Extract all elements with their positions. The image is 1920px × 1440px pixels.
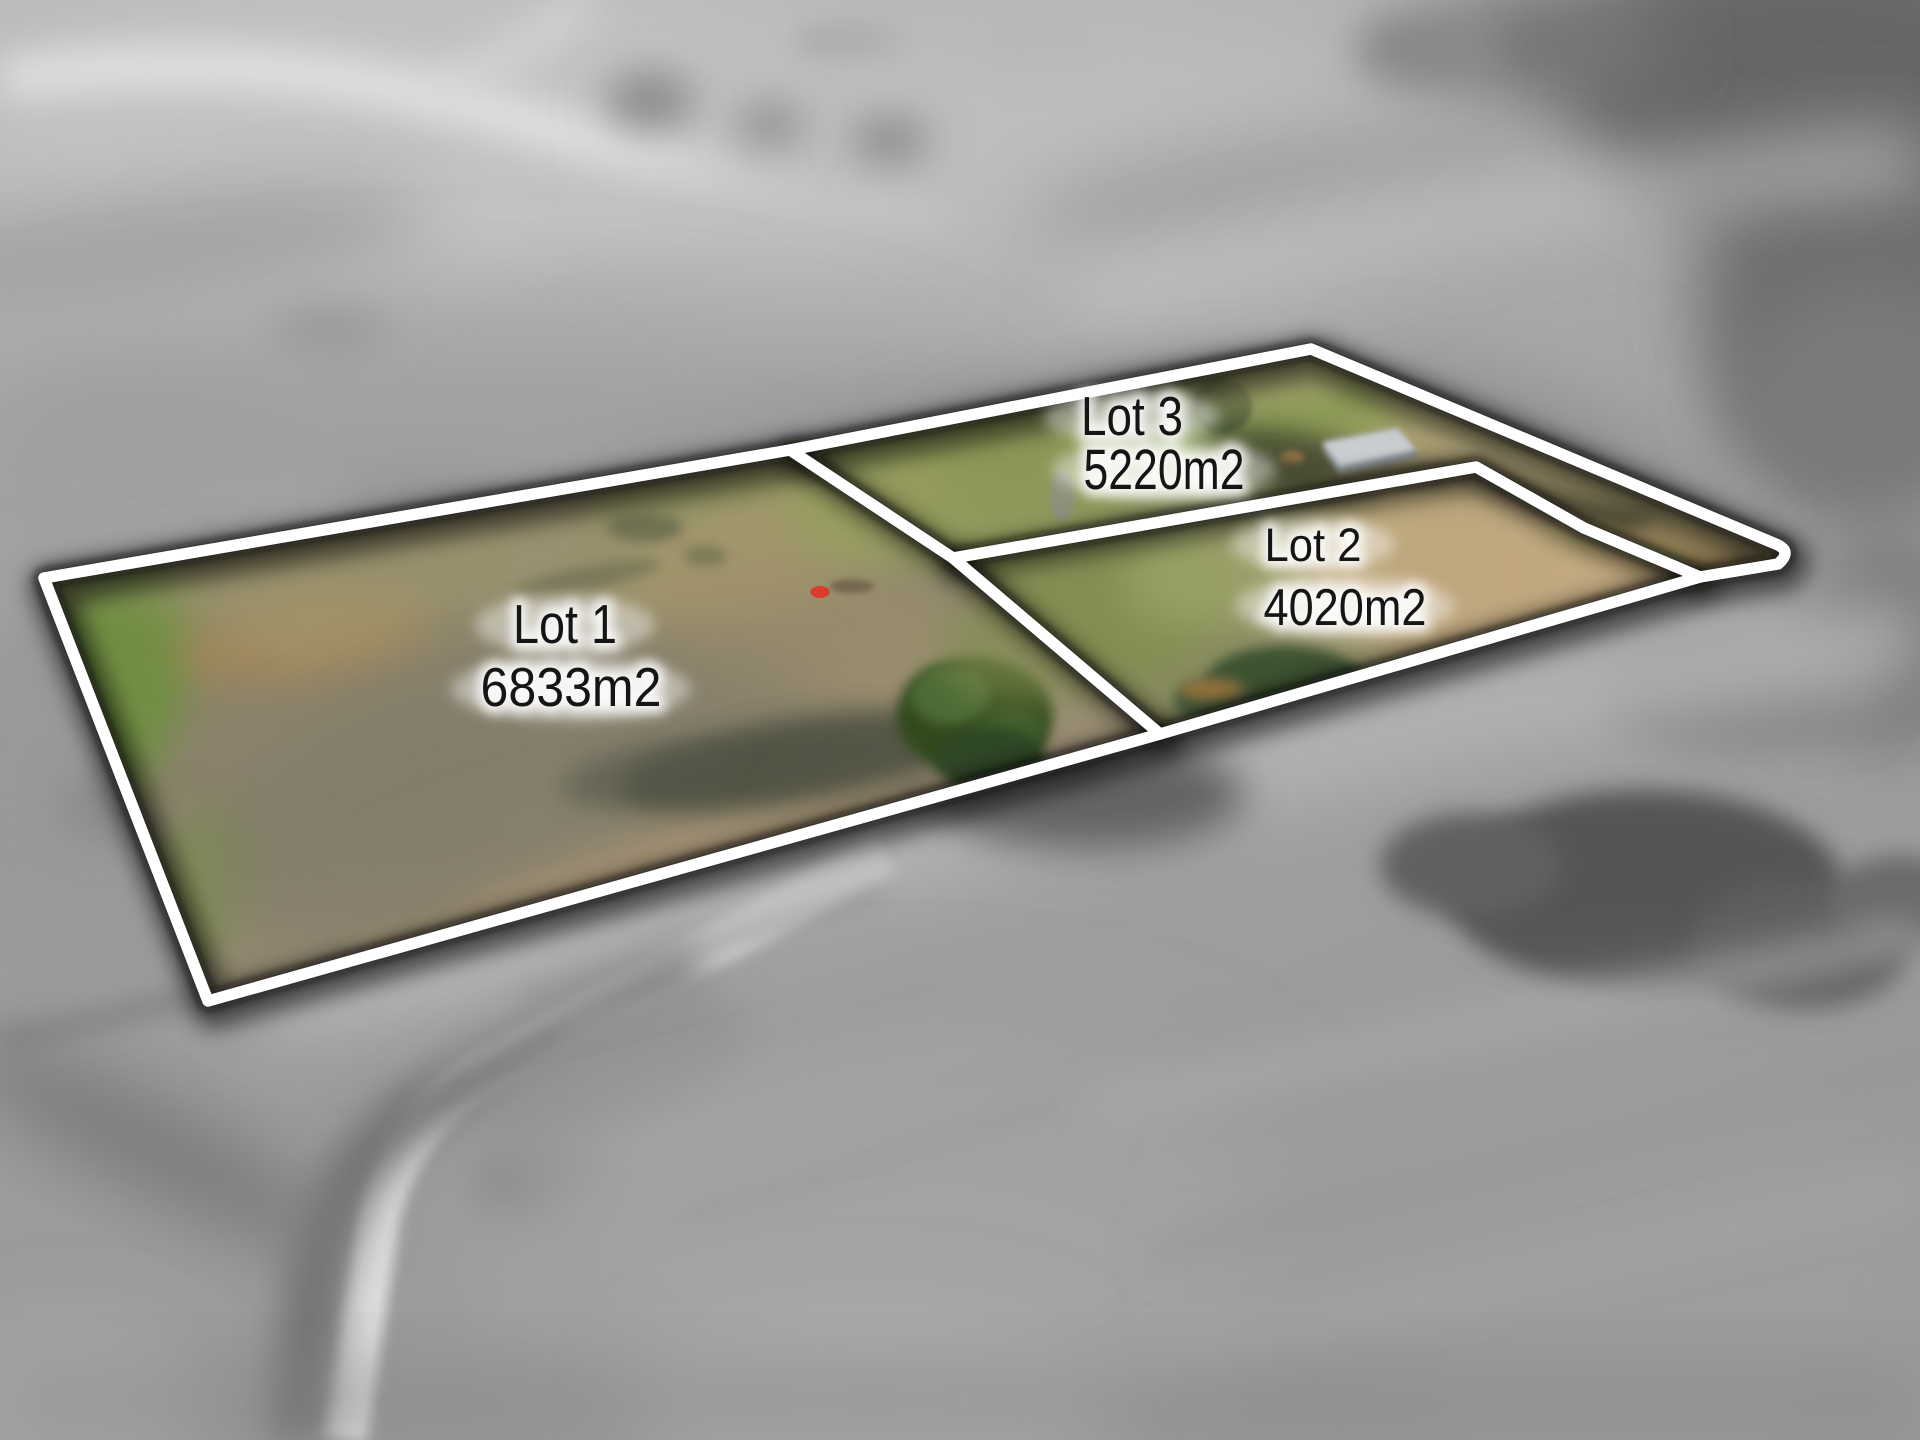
svg-text:Lot 1: Lot 1 xyxy=(513,593,617,655)
svg-text:6833m2: 6833m2 xyxy=(481,656,662,718)
svg-text:4020m2: 4020m2 xyxy=(1264,579,1427,637)
svg-text:Lot 2: Lot 2 xyxy=(1265,518,1362,571)
svg-text:5220m2: 5220m2 xyxy=(1084,438,1245,502)
